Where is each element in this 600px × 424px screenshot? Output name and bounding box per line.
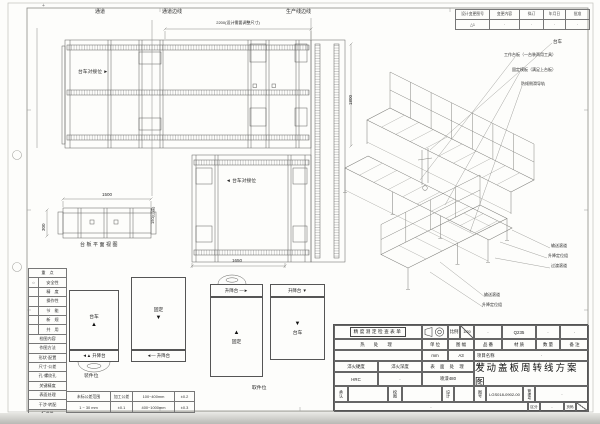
legend-mark [29,297,39,306]
approve-label: 承认 [339,390,343,398]
page-label: 页码 [564,402,576,412]
page-value-cell [576,402,589,412]
part-no-value: · [474,325,502,339]
legend-check-row: 表面处理 [29,391,67,400]
qty-label: 数 量 [536,339,560,350]
rev-cell: · [490,20,520,30]
surface-treatment-label: 表 面 处 理 [422,361,474,372]
legend-check-row: 形状·配置 [29,353,67,362]
binder-holes [13,151,22,272]
legend-label: 共 用 [39,325,67,334]
project-name-label: 项目名称 [477,353,495,359]
tol-cell: 加工公差 [111,392,133,402]
aisle-edge-label: 通道边线 [162,10,182,16]
dim-1500: 1500 [92,192,122,197]
iso-railings [381,72,534,255]
legend-check-row: 孔·螺纹孔 [29,372,67,381]
arrow-down-icon: ▼ [156,315,162,321]
legend-label: 精 度 [39,287,67,296]
drawing-name-cell: 名称 发动盖板周转线方案图 [474,361,589,386]
legend-mark [29,325,39,334]
legend-check-row: 干涉·转配 [29,400,67,409]
legend-header-check: 检图内容 [29,334,67,343]
scale-label: 比例 [448,325,460,339]
tol-cell: 100~400mm [133,392,175,402]
pickup-position-caption: 取件位 [252,386,266,392]
schematic-fixed-box-a: 固定 ▼ [131,277,186,350]
cart-label: 台车 [293,329,303,336]
rev-cell: · [544,20,566,30]
drawing-name: 发动盖板周转线方案图 [475,361,588,386]
line-edge-label: 生产线边线 [286,10,311,16]
legend-check-row: 尺寸·公差 [29,362,67,371]
sheet-size-label: 图 幅 [448,339,474,350]
rev-header: 批准 [566,10,590,20]
drawing-sheet: + 通道 通道边线 2200(设计需要调整尺寸) 生产线边线 台车对接位 ► ◄… [0,0,600,424]
drawing-no-value: LGS018-0902-00 [486,386,523,402]
dock-label-bottom-text: 台车对接位 [232,179,256,184]
legend-check-row: 关键精度 [29,381,67,390]
check-label: 校图 [393,390,397,398]
legend-mark [29,315,39,324]
tol-cell: ±0.1 [111,402,133,412]
arrow-left-icon: ◄ [226,179,231,184]
legend-check-row: 作图方法 [29,344,67,353]
class-value: · [540,402,564,412]
heat-treatment-label: 热 处 理 [334,339,422,350]
rev-cell: △1 [456,20,490,30]
tol-cell: 1 ~ 30 mm [67,402,111,412]
loading-position-caption: 装件位 [84,374,98,380]
schematic-cart-box-b: ▼ 台车 [270,297,325,360]
quench-hardness-value: HRC [334,372,378,386]
dim-1800: 1800 [348,95,353,105]
quench-hardness-label: 淬火硬度 [334,361,378,372]
callout-worktable: 工作台板（一台装两用工具） [504,53,556,58]
rev-cell: · [566,20,590,30]
mgmt-no-label: 管理号 [527,389,531,400]
legend-label: 新 规 [39,315,67,324]
tol-cell: ±0.3 [175,402,195,412]
dock-position-label-bottom: ◄ 台车对接位 [226,179,256,185]
part-no-label: 品 番 [474,339,502,350]
callout-roller-2: 输送滚道 [484,293,500,298]
side-view-caption: 台板平面视图 [80,243,119,249]
legend-mark: ○ [29,278,39,287]
lift-strip-a2: ◄— 升降台 [131,350,186,362]
design-signature [454,386,474,402]
tol-cell: 未标公差范围 [67,392,111,402]
class-label: 区分 [528,402,540,412]
remark-label: 备 注 [560,339,589,350]
callout-transition: 过渡滚道 [551,264,567,269]
plan-view-linework [37,18,345,262]
tol-cell: 400~1000mm [133,402,175,412]
callout-lift-2: 升降定位组 [482,303,502,308]
legend-label: 节 能 [39,306,67,315]
quench-depth-label: 淬火深度 [378,361,422,372]
note-cell: · [334,402,528,412]
drawing-no-label: 图号 [478,390,482,398]
dim-1650: 1650 [222,258,252,263]
unit-label: 单 位 [422,339,448,350]
surface-treatment-value: 喷漆480 [422,372,474,386]
tol-cell: ±0.2 [175,392,195,402]
dim-300: 300 [41,223,46,231]
sheet-size-value: A3 [448,350,474,361]
callout-lift-1: 升降定位组 [548,254,568,259]
projection-symbol-cell [422,325,448,339]
fixed-label: 固定 [154,306,164,313]
legend-table: 重 点 ○安全性 精 度 操作性 节 能 新 规 共 用 检图内容 作图方法 形… [28,268,67,419]
lift-strip-b2: 升降台 ▼ [270,284,325,297]
material-label: 材 质 [502,339,536,350]
rev-header: 拟订 [520,10,544,20]
material-value: Q235 [502,325,536,339]
remark-value: · [560,325,589,339]
project-name-cell: 项目名称 · [474,350,589,361]
side-view-linework [58,208,156,238]
legend-mark [29,287,39,296]
design-label: 设计 [446,390,450,398]
dim-2200: 2200(设计需要调整尺寸) [183,21,293,26]
checklist-cell: 精度测定检查表单 [334,325,422,339]
legend-header-focus: 重 点 [29,269,67,278]
arrow-up-icon: ▲ [234,330,240,336]
rev-header: 设计变更图号 [456,10,490,20]
callout-roller-1: 输送滚道 [551,244,567,249]
legend-label: 操作性 [39,297,67,306]
aisle-label: 通道 [95,10,105,16]
iso-legs [343,120,511,290]
schematic-fixed-box-b: ▲ 固定 [210,297,263,377]
qty-value: · [536,325,560,339]
rev-header: 变更内容 [490,10,520,20]
scale-value: 1/20 [460,325,474,339]
callout-guide-rail: 防倾侧滑导轨 [521,82,545,87]
cart-label: 台车 [89,313,99,320]
name-label: 名称 [477,363,485,368]
heat-treatment-value [334,350,422,361]
rev-cell: · [520,20,544,30]
dock-label-top-text: 台车对接位 [78,70,102,75]
unit-value: mm [422,350,448,361]
arrow-up-icon: ▲ [91,322,97,328]
quench-depth-value: · [378,372,422,386]
mgmt-no-value: · [535,386,589,402]
corner-mark-icon: + [42,4,45,10]
callout-cart: 台车 [553,39,562,44]
schematic-cart-box-a: 台车 ▲ [69,290,119,350]
arrow-right-icon: ► [103,70,108,75]
lift-strip-a1: ◄▲ 升降台 [69,350,119,362]
title-block: 精度测定检查表单 比例 1/20 热 处 理 单 位 图 幅 mm A3 淬火硬… [333,324,588,411]
legend-label: 安全性 [39,278,67,287]
project-name-value: · [541,353,542,358]
arrow-down-icon: ▼ [295,321,301,327]
lift-strip-b1: 升降台 —► [210,284,263,297]
approve-signature [348,386,388,402]
checklist-title: 精度测定检查表单 [350,327,407,337]
dock-position-label-top: 台车对接位 ► [78,70,108,76]
check-signature [402,386,442,402]
dim-150-transition: 150(过渡) [151,207,156,224]
revision-table: 设计变更图号 变更内容 拟订 年月日 批准 △1 · · · · [455,9,590,30]
scan-edge [0,413,600,424]
callout-fixed-plate: 固定模板（满足上台板） [512,68,556,73]
legend-mark [29,306,39,315]
first-angle-projection-icon [423,326,447,338]
fixed-label: 固定 [232,338,242,345]
rev-header: 年月日 [544,10,566,20]
